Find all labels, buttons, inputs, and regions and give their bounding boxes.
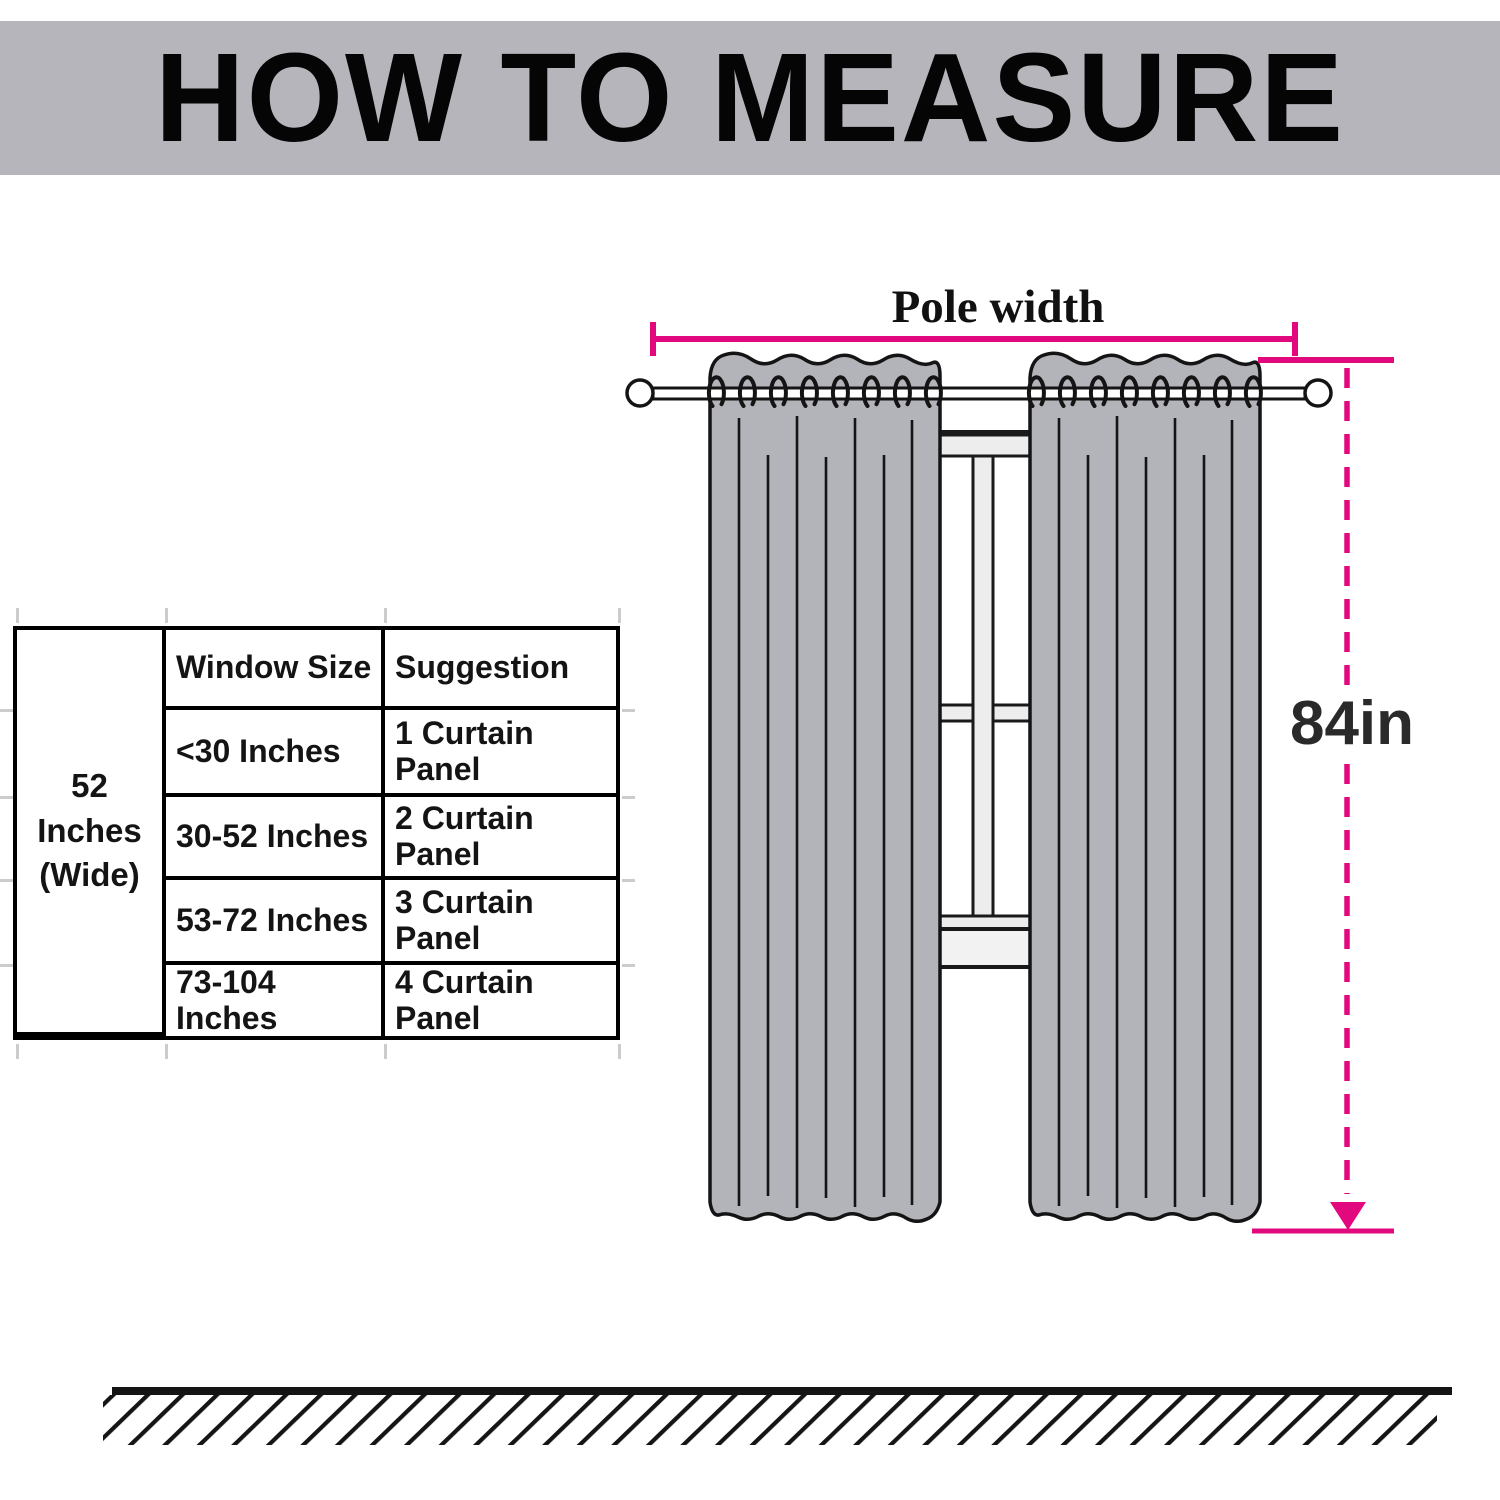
floor-hatching (103, 1395, 1437, 1445)
how-to-measure-infographic: HOW TO MEASURE 52 Inches (Wide) Window S… (0, 0, 1500, 1500)
floor (103, 1391, 1452, 1445)
pole-bar (653, 388, 1305, 399)
pole-width-label: Pole width (892, 281, 1105, 333)
pole-finial-left (627, 380, 653, 406)
curtain-panel-right (1030, 353, 1260, 1221)
window-mullion (973, 456, 993, 916)
height-arrowhead (1330, 1202, 1366, 1230)
curtain-panel-left (710, 353, 940, 1221)
pole-finial-right (1305, 380, 1331, 406)
measurement-diagram: Pole width 84in (0, 0, 1500, 1500)
height-label: 84in (1290, 689, 1414, 758)
